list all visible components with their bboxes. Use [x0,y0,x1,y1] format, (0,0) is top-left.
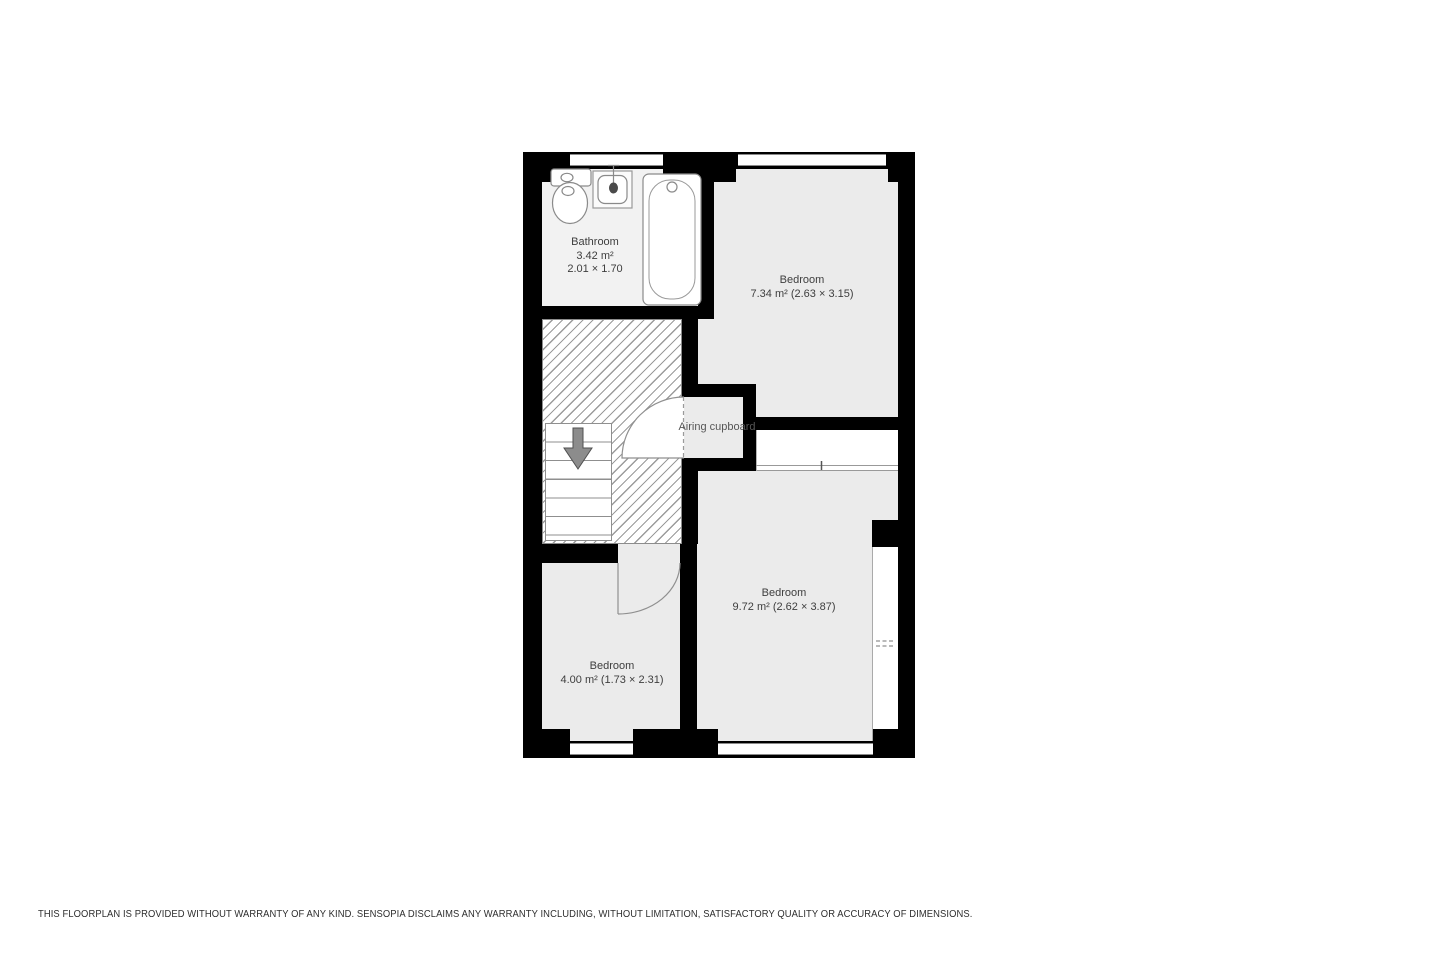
room-name: Bedroom [750,274,853,288]
niche-dashes-icon [876,641,893,646]
room-label-bedroom-right: Bedroom 9.72 m² (2.62 × 3.87) [732,587,835,614]
room-name: Bedroom [560,660,663,674]
room-details: 9.72 m² (2.62 × 3.87) [732,601,835,615]
room-name: Airing cupboard [678,421,755,435]
room-label-bedroom-top: Bedroom 7.34 m² (2.63 × 3.15) [750,274,853,301]
room-name: Bedroom [732,587,835,601]
door-swing-bedroom-left [618,563,680,614]
toilet-icon [551,169,591,224]
door-swing-airing-cupboard [622,397,684,458]
sink-icon [593,165,632,208]
disclaimer-text: THIS FLOORPLAN IS PROVIDED WITHOUT WARRA… [38,909,972,920]
room-name: Bathroom [567,236,622,250]
room-details: 7.34 m² (2.63 × 3.15) [750,288,853,302]
stairs-down-arrow-icon [564,428,592,469]
bathtub-icon [643,174,701,305]
room-details: 4.00 m² (1.73 × 2.31) [560,674,663,688]
floorplan-canvas: Bathroom 3.42 m² 2.01 × 1.70 Bedroom 7.3… [0,0,1440,960]
room-label-bathroom: Bathroom 3.42 m² 2.01 × 1.70 [567,236,622,277]
room-area: 3.42 m² [567,250,622,264]
room-dims: 2.01 × 1.70 [567,263,622,277]
room-label-bedroom-left: Bedroom 4.00 m² (1.73 × 2.31) [560,660,663,687]
room-label-airing-cupboard: Airing cupboard [678,421,755,435]
